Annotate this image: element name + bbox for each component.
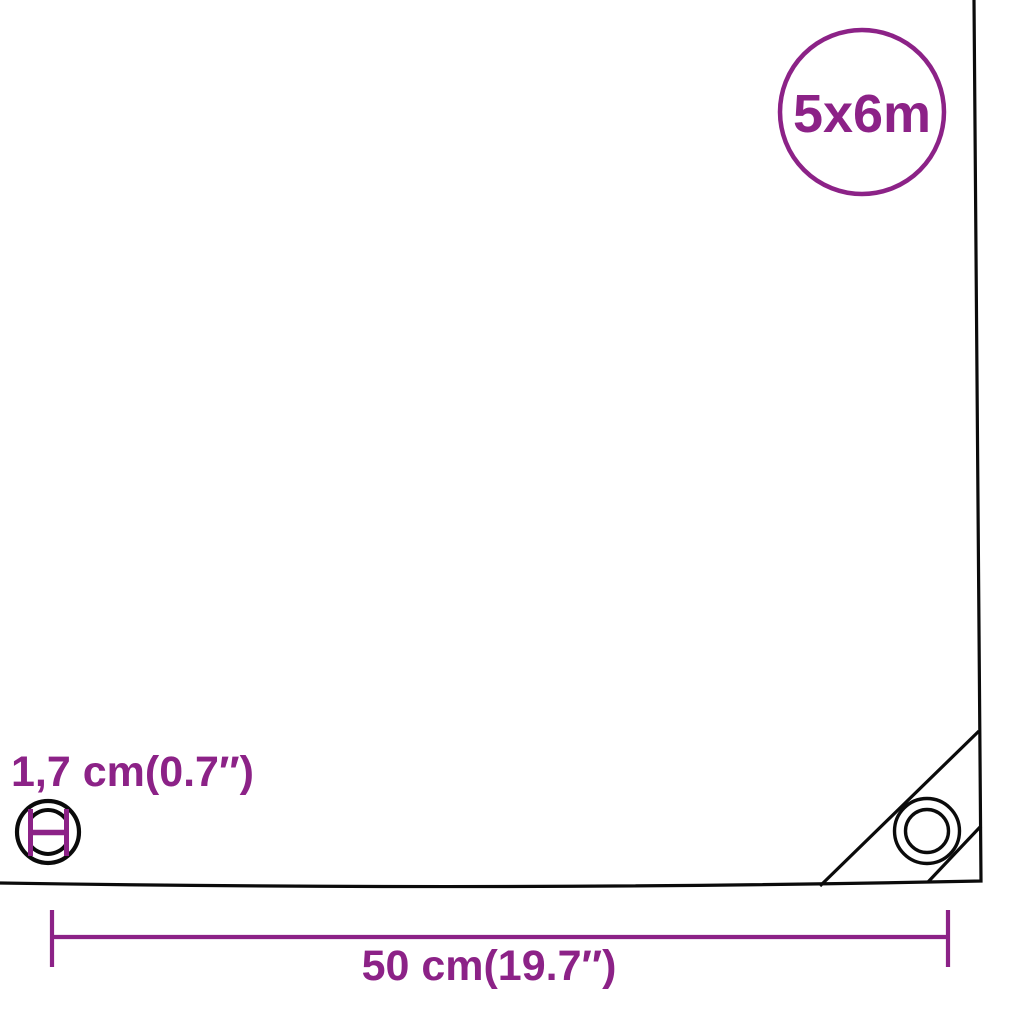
eyelet-icon — [17, 801, 79, 863]
corner-fold-long-line — [820, 731, 979, 886]
eyelet-diameter-label: 1,7 cm(0.7″) — [11, 748, 254, 796]
eyelet-inner-top-arc — [30, 810, 66, 819]
size-badge: 5x6m — [780, 30, 944, 194]
tarpaulin-dimension-diagram: 1,7 cm(0.7″) 5x6m 50 cm(19.7″) — [0, 0, 1024, 1024]
edge-dimension: 50 cm(19.7″) — [52, 910, 948, 990]
corner-fold-short-line — [928, 826, 981, 882]
edge-dimension-label: 50 cm(19.7″) — [362, 942, 617, 990]
grommet-icon — [895, 799, 960, 864]
eyelet-inner-bottom-arc — [30, 845, 66, 854]
tarp-diagram-canvas: 1,7 cm(0.7″) 5x6m 50 cm(19.7″) — [0, 0, 1024, 1024]
grommet-inner-ring — [906, 810, 949, 853]
size-badge-label: 5x6m — [793, 84, 931, 144]
